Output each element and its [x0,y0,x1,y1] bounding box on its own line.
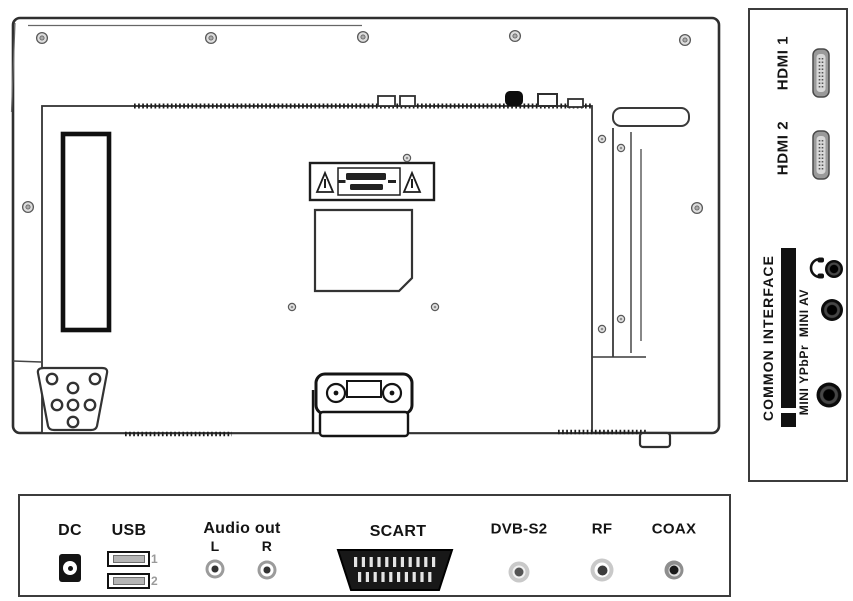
audio-left-label: L [211,538,220,554]
usb-port-2 [107,573,150,589]
hdmi2-label: HDMI 2 [775,121,792,175]
hdmi-connector-icon [812,48,830,98]
screw-icon [598,325,605,332]
tv-rear-connection-diagram: HDMI 1 HDMI 2 COMMON INTERFACE MINI AV M… [0,0,853,601]
screw-icon [510,31,521,42]
scart-connector [334,548,456,592]
screw-icon [680,35,691,46]
mini-av-jack [821,299,843,321]
dc-label: DC [58,522,82,540]
screw-icon [431,303,438,310]
side-io-panel: HDMI 1 HDMI 2 COMMON INTERFACE MINI AV M… [748,8,848,482]
screw-icon [288,303,295,310]
screw-icon [206,33,217,44]
hdmi1-label: HDMI 1 [775,36,792,90]
bottom-io-panel: DC USB 1 2 Audio out L R SCART DVB-S2 [18,494,731,597]
dvbs2-jack [509,562,530,583]
usb-port-1 [107,551,150,567]
caution-label [310,163,434,200]
tv-rear-view [0,0,745,470]
dc-power-jack [59,554,81,582]
screw-icon [617,144,624,151]
screw-icon [403,154,410,161]
stand-bracket [313,374,412,436]
audio-left-jack [206,560,225,579]
coax-jack [665,561,684,580]
audio-right-label: R [262,538,272,554]
screw-icon [358,32,369,43]
scart-label: SCART [370,523,427,541]
audio-out-label: Audio out [203,520,280,538]
screw-icon [598,135,605,142]
common-interface-label: COMMON INTERFACE [760,255,776,421]
screw-icon [692,203,703,214]
stand-mount-plate [38,368,107,430]
handle-slot [63,134,109,330]
usb-port2-number: 2 [151,574,158,588]
headphone-icon [804,257,826,279]
screw-icon [617,315,624,322]
rf-label: RF [592,521,613,538]
vesa-plate [315,210,412,291]
bottom-tab [640,433,670,447]
usb-label: USB [112,522,147,540]
usb-port1-number: 1 [151,552,158,566]
rf-jack [591,559,614,582]
ci-card-slot-notch [781,413,796,427]
screw-icon [23,202,34,213]
headphone-jack [825,260,843,278]
coax-label: COAX [652,521,697,538]
top-knob [505,91,523,106]
ci-card-slot [781,248,796,408]
screw-icon [37,33,48,44]
audio-right-jack [258,561,277,580]
mini-av-label: MINI AV [797,289,811,337]
mini-ypbpr-label: MINI YPbPr [797,345,811,415]
hdmi-connector-icon [812,130,830,180]
dvbs2-label: DVB-S2 [491,521,548,538]
mini-ypbpr-jack [817,383,842,408]
